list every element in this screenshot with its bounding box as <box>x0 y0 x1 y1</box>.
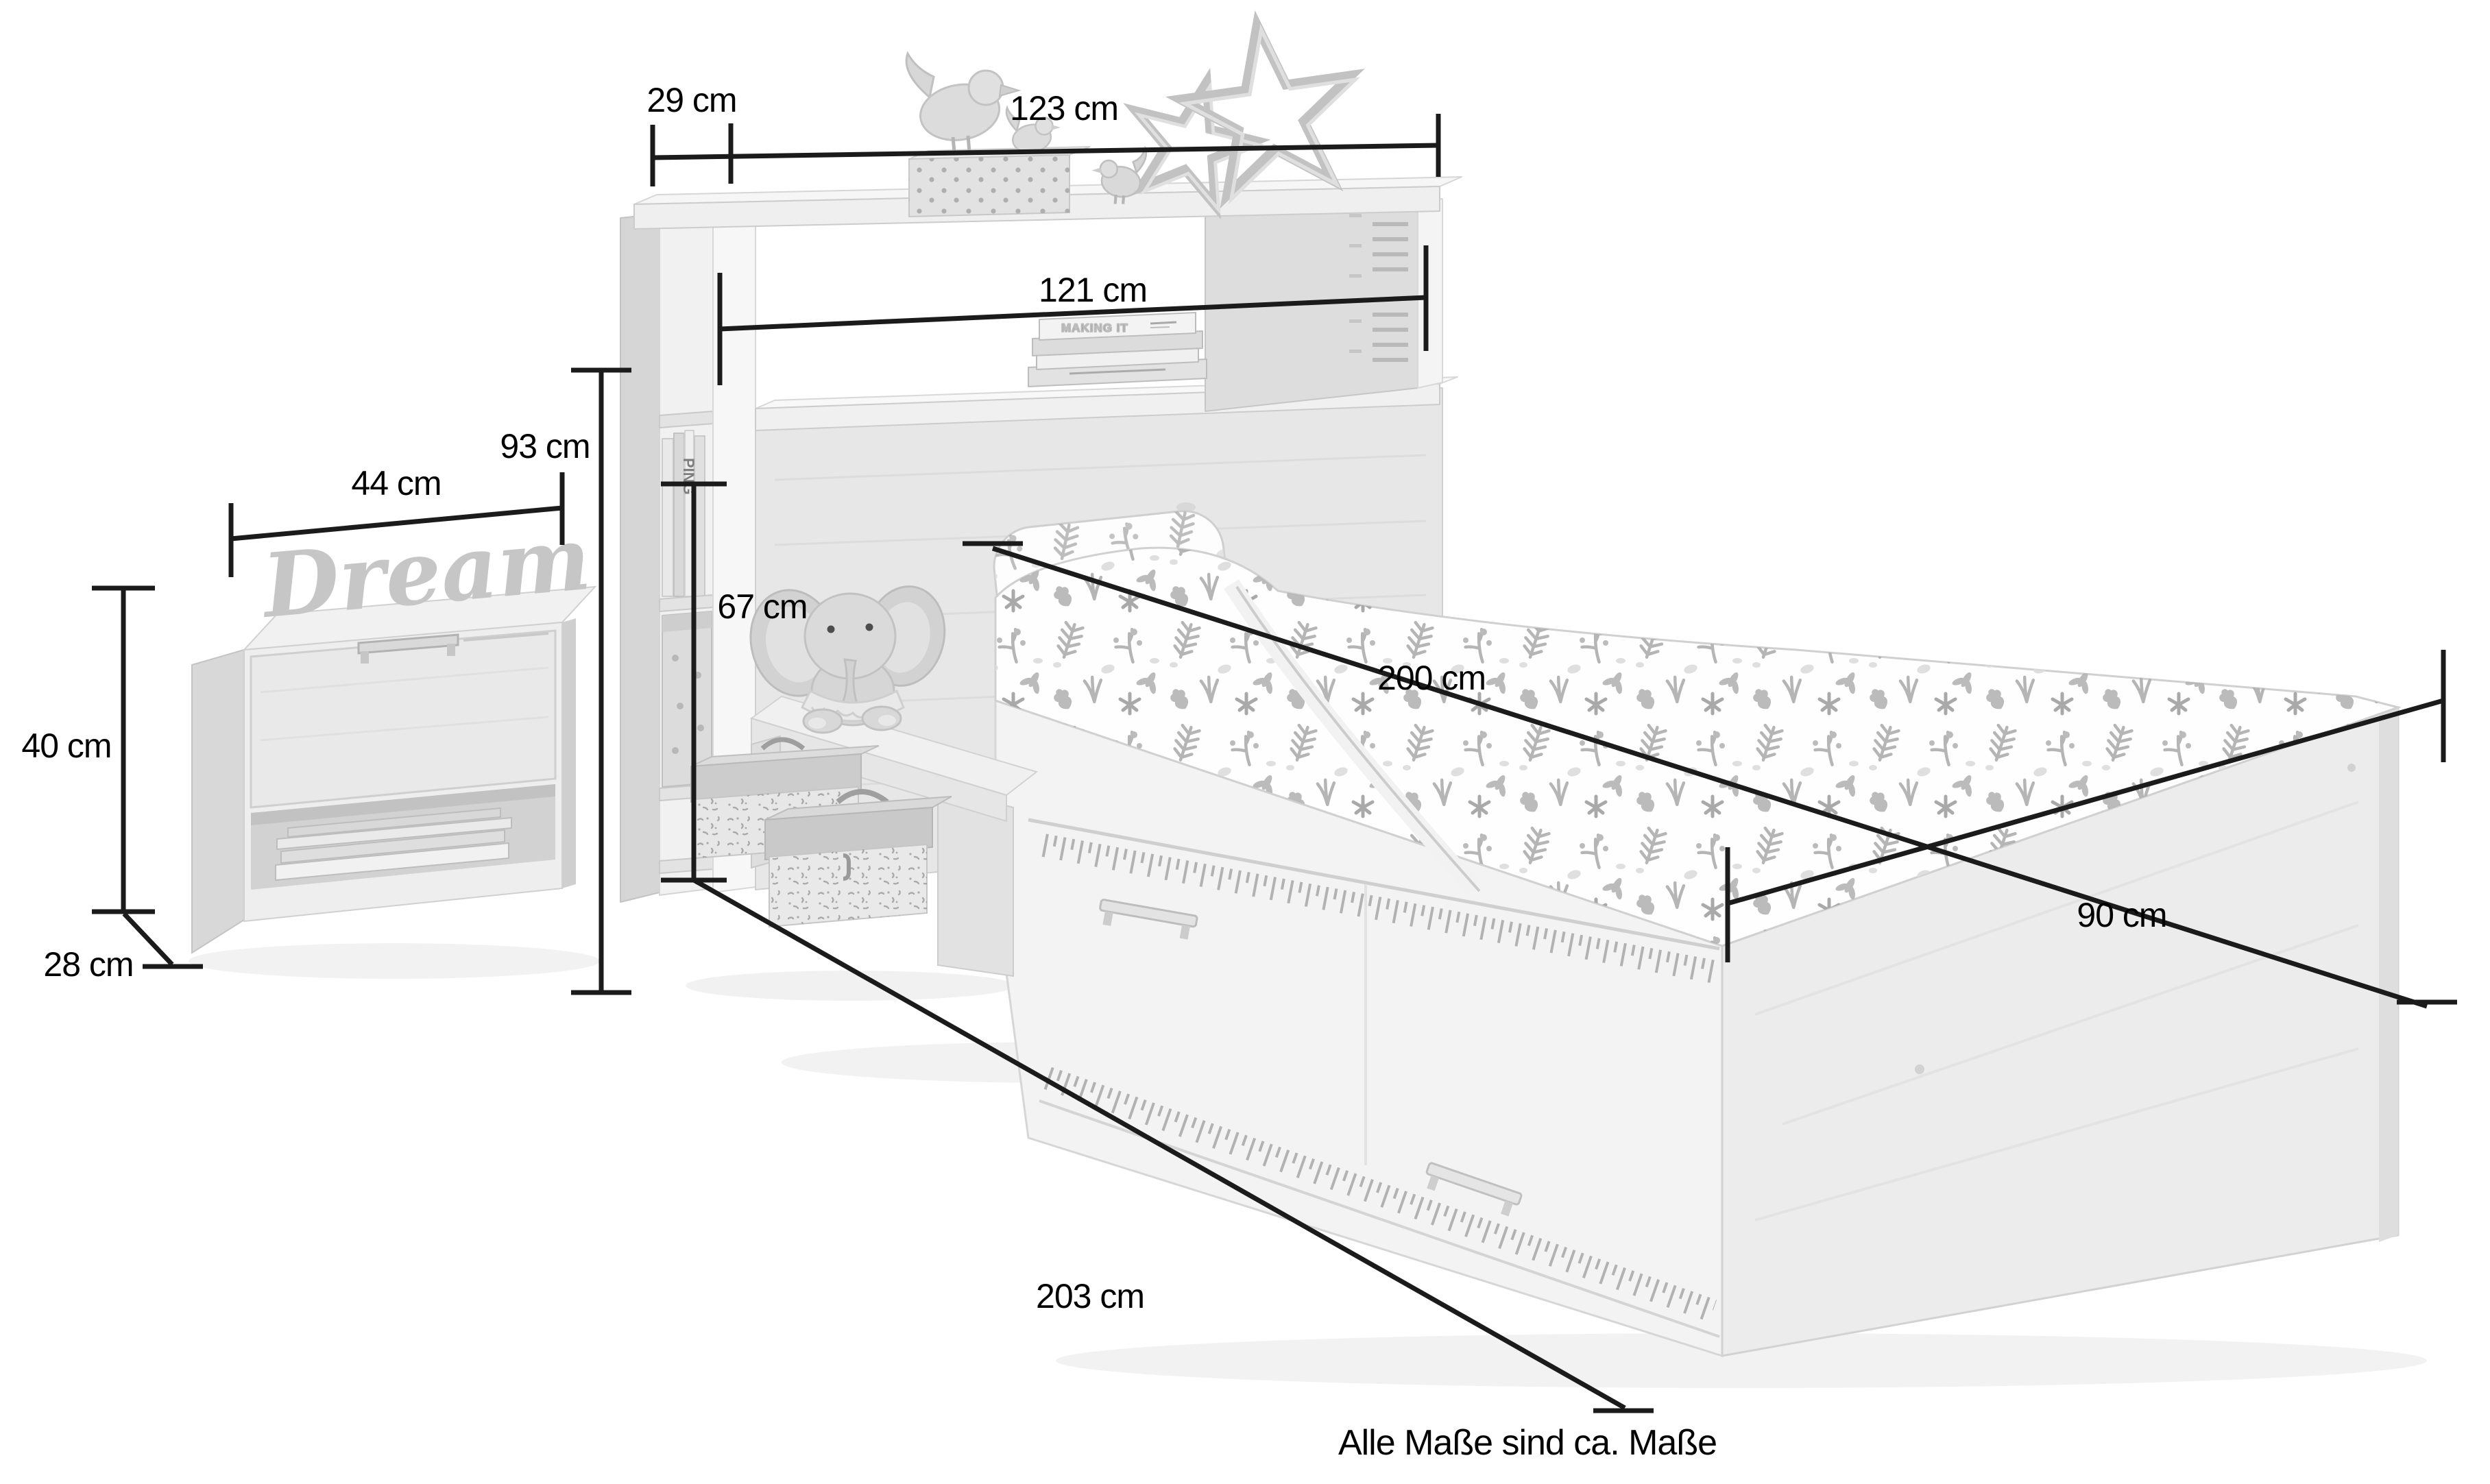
dimension-label-28cm: 28 cm <box>43 945 133 984</box>
nightstand: Dream <box>192 507 595 953</box>
dimension-label-93cm: 93 cm <box>500 427 590 465</box>
dimension-label-67cm: 67 cm <box>717 587 807 626</box>
dimension-label-40cm: 40 cm <box>21 727 111 765</box>
side-shelf-books: PING <box>662 430 705 596</box>
nightstand-side-panel <box>192 650 244 953</box>
shelf-book-stack: MAKING IT <box>1028 313 1207 387</box>
dimension-label-200cm: 200 cm <box>1377 659 1486 697</box>
dimension-label-44cm: 44 cm <box>351 464 441 502</box>
book-spine-making-it: MAKING IT <box>1061 321 1128 334</box>
dimension-label-121cm: 121 cm <box>1039 271 1147 309</box>
star-decoration-large <box>1172 14 1369 204</box>
headboard-left-side-panel <box>620 214 660 902</box>
measurements-disclaimer: Alle Maße sind ca. Maße <box>1338 1423 1717 1463</box>
dotted-gift-box <box>909 147 1090 217</box>
bird-figurine-large <box>906 53 1019 152</box>
suitcase-large <box>765 792 952 927</box>
dimension-label-123cm: 123 cm <box>1010 89 1118 127</box>
nightstand-right-edge <box>562 618 576 888</box>
dimension-label-29cm: 29 cm <box>646 81 736 119</box>
dimension-label-203cm: 203 cm <box>1036 1277 1144 1315</box>
nightstand-drawer <box>251 631 555 807</box>
dimension-label-90cm: 90 cm <box>2077 896 2166 934</box>
product-dimension-diagram: PING <box>0 0 2490 1484</box>
